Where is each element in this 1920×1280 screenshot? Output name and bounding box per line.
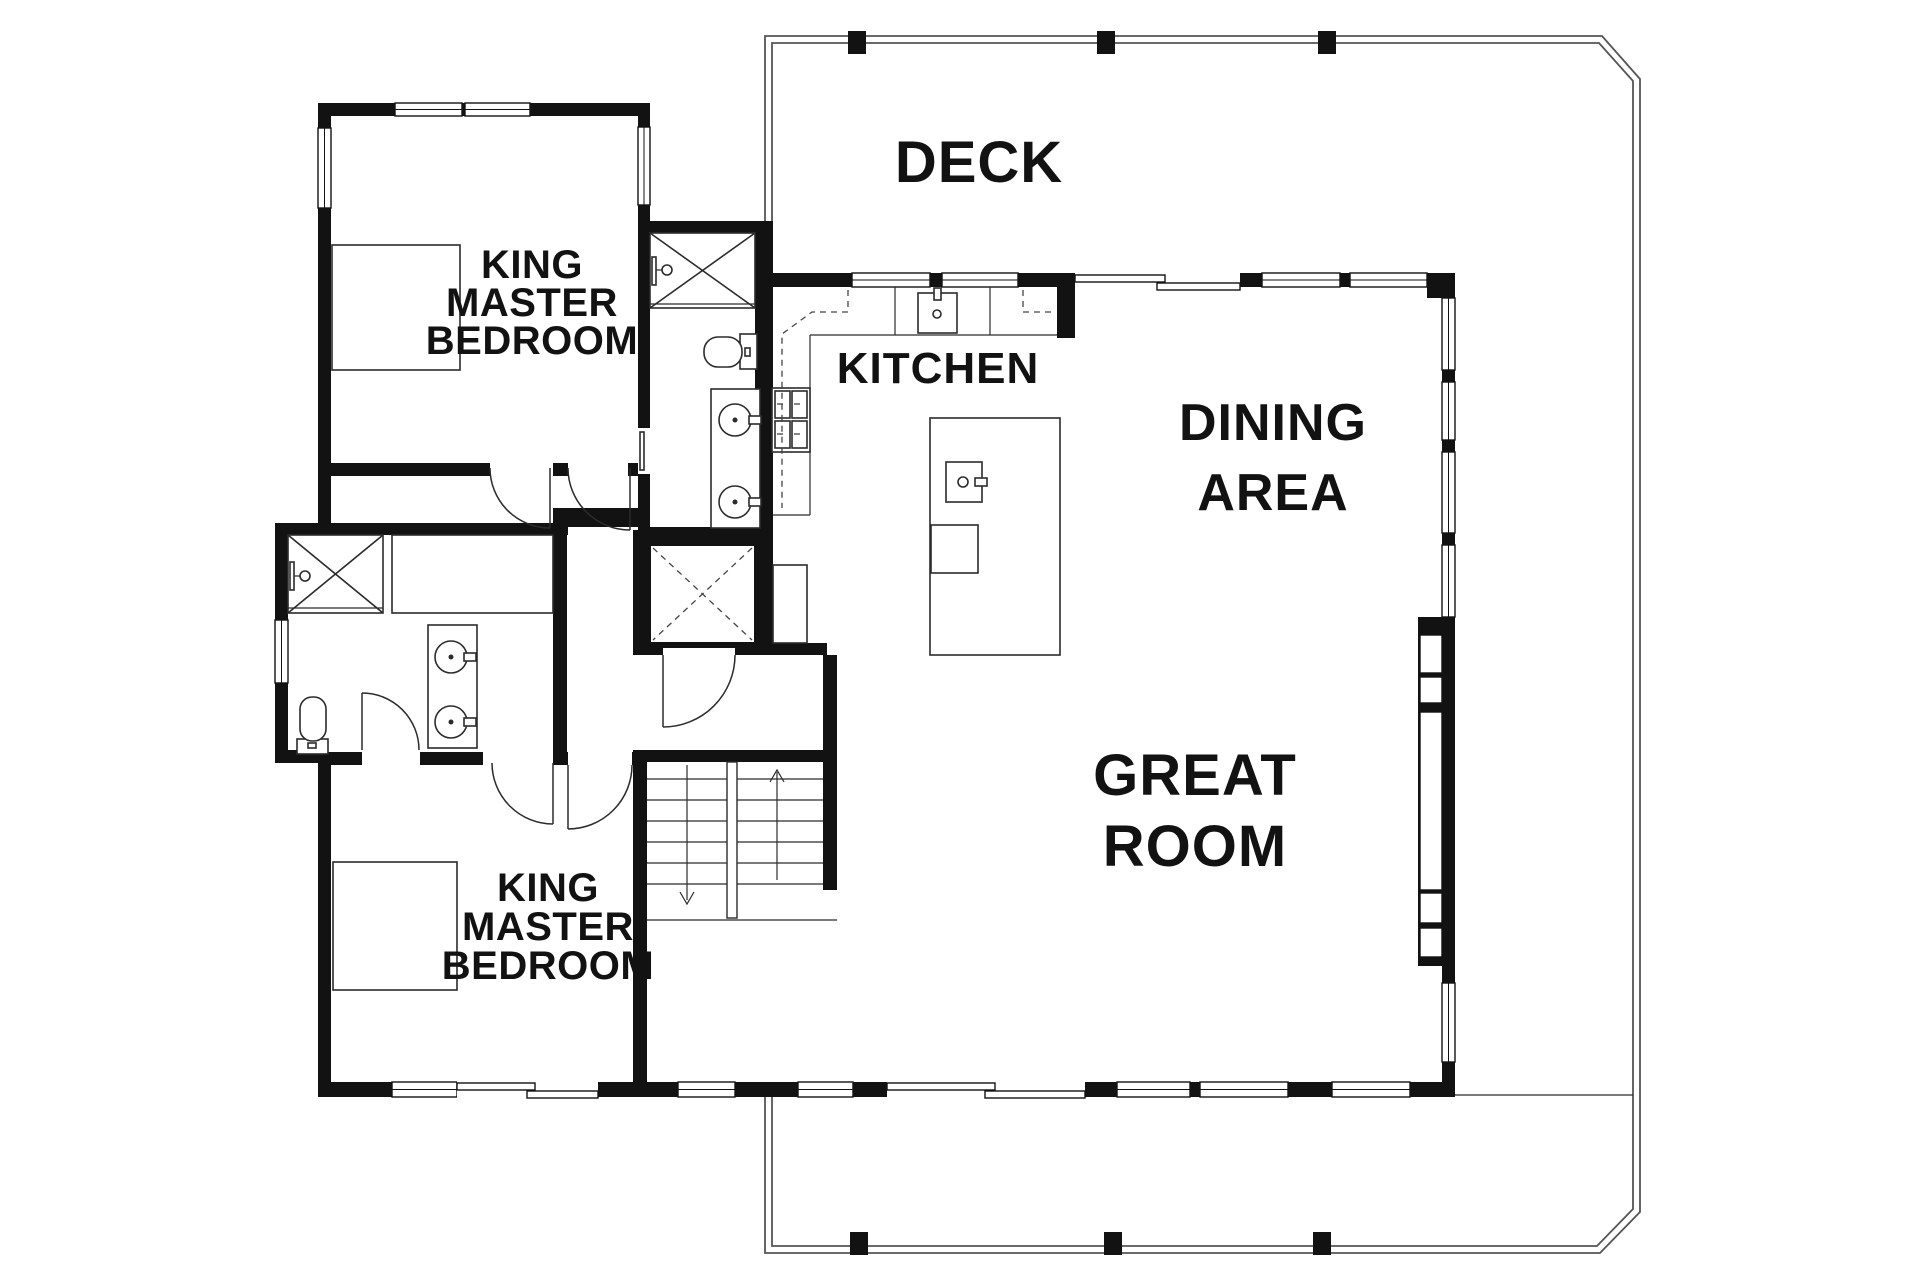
upper-cabinet-dashed xyxy=(1023,290,1056,312)
window xyxy=(1442,382,1455,440)
window xyxy=(798,1082,853,1097)
stair-down-arrow xyxy=(680,765,694,904)
wall-segment xyxy=(553,463,568,476)
door-bedroom1 xyxy=(490,462,553,528)
kitchen-label: KITCHEN xyxy=(837,344,1040,393)
double-vanity xyxy=(428,625,477,748)
deck-posts xyxy=(848,31,1336,1255)
kitchen-sink-icon xyxy=(918,288,957,333)
door-bathroom2 xyxy=(362,693,420,765)
bedroom2-label-line3: BEDROOM xyxy=(442,944,654,988)
wall-segment xyxy=(638,221,767,233)
greatroom-label-line2: ROOM xyxy=(1103,814,1287,879)
wall-segment xyxy=(1057,287,1075,338)
wall-segment xyxy=(635,750,823,762)
window xyxy=(318,128,331,208)
bathroom-top xyxy=(650,233,761,528)
dining-label-line1: DINING xyxy=(1179,394,1367,452)
window xyxy=(942,273,1018,287)
window xyxy=(678,1082,735,1097)
shower-icon xyxy=(650,233,755,308)
bedroom2-label-line2: MASTER xyxy=(462,905,634,949)
bedroom1-label-line3: BEDROOM xyxy=(426,319,638,363)
window xyxy=(1350,273,1427,287)
door-greatroom-hall xyxy=(663,641,735,727)
wall-segment xyxy=(275,523,568,535)
bedroom2-label-line1: KING xyxy=(497,866,599,910)
stair-treads xyxy=(647,779,837,920)
closet-elevator xyxy=(648,543,757,645)
deck-post xyxy=(1097,31,1115,54)
deck-post xyxy=(1318,31,1336,54)
window xyxy=(1262,273,1340,287)
fireplace-builtins xyxy=(1420,635,1442,957)
deck-post xyxy=(850,1232,868,1255)
wall-segment xyxy=(318,752,331,1097)
deck-post xyxy=(1104,1232,1122,1255)
window xyxy=(638,127,650,205)
window xyxy=(1200,1082,1288,1097)
kitchen xyxy=(772,287,1060,655)
window xyxy=(852,273,930,287)
door-bedroom2-left xyxy=(483,751,553,824)
deck-post xyxy=(848,31,866,54)
window xyxy=(395,103,462,116)
greatroom-label-line1: GREAT xyxy=(1093,743,1297,808)
window xyxy=(1442,983,1455,1062)
window xyxy=(392,1082,457,1097)
wall-segment xyxy=(553,508,650,527)
window xyxy=(1442,452,1455,533)
door-bedroom2-right xyxy=(568,751,632,829)
deck-label: DECK xyxy=(895,130,1063,195)
sliding-door-greatroom-deck xyxy=(887,1080,1085,1099)
window xyxy=(1117,1082,1190,1097)
sliding-door-kitchen-deck xyxy=(1075,271,1240,290)
sliding-door-bedroom2-deck xyxy=(457,1080,598,1099)
toilet-icon xyxy=(297,697,328,754)
deck-rail-outer xyxy=(765,36,1640,1253)
deck: DECK xyxy=(765,31,1640,1255)
staircase xyxy=(647,762,837,920)
window xyxy=(1442,298,1455,370)
wall-segment xyxy=(823,655,837,890)
stair-rail xyxy=(727,762,737,918)
window xyxy=(275,620,288,683)
dining-label-line2: AREA xyxy=(1197,464,1348,522)
window xyxy=(1332,1082,1410,1097)
pocket-door-bathroom1 xyxy=(638,428,650,474)
toilet-icon xyxy=(704,334,757,369)
wall-segment xyxy=(331,463,490,476)
bed-bedroom2 xyxy=(333,862,457,990)
floor-plan: DECK xyxy=(0,0,1920,1280)
refrigerator xyxy=(773,565,807,643)
bathroom-bottom xyxy=(288,535,553,754)
kitchen-island xyxy=(930,418,1060,655)
closet xyxy=(392,535,553,613)
window xyxy=(465,103,530,116)
deck-rail-inner xyxy=(772,43,1633,1246)
deck-post xyxy=(1313,1232,1331,1255)
shower-icon xyxy=(288,535,383,613)
window xyxy=(1442,545,1455,617)
wall-segment xyxy=(633,750,647,1097)
stove-icon xyxy=(772,388,810,452)
wall-segment xyxy=(553,530,567,763)
double-vanity xyxy=(711,389,761,528)
